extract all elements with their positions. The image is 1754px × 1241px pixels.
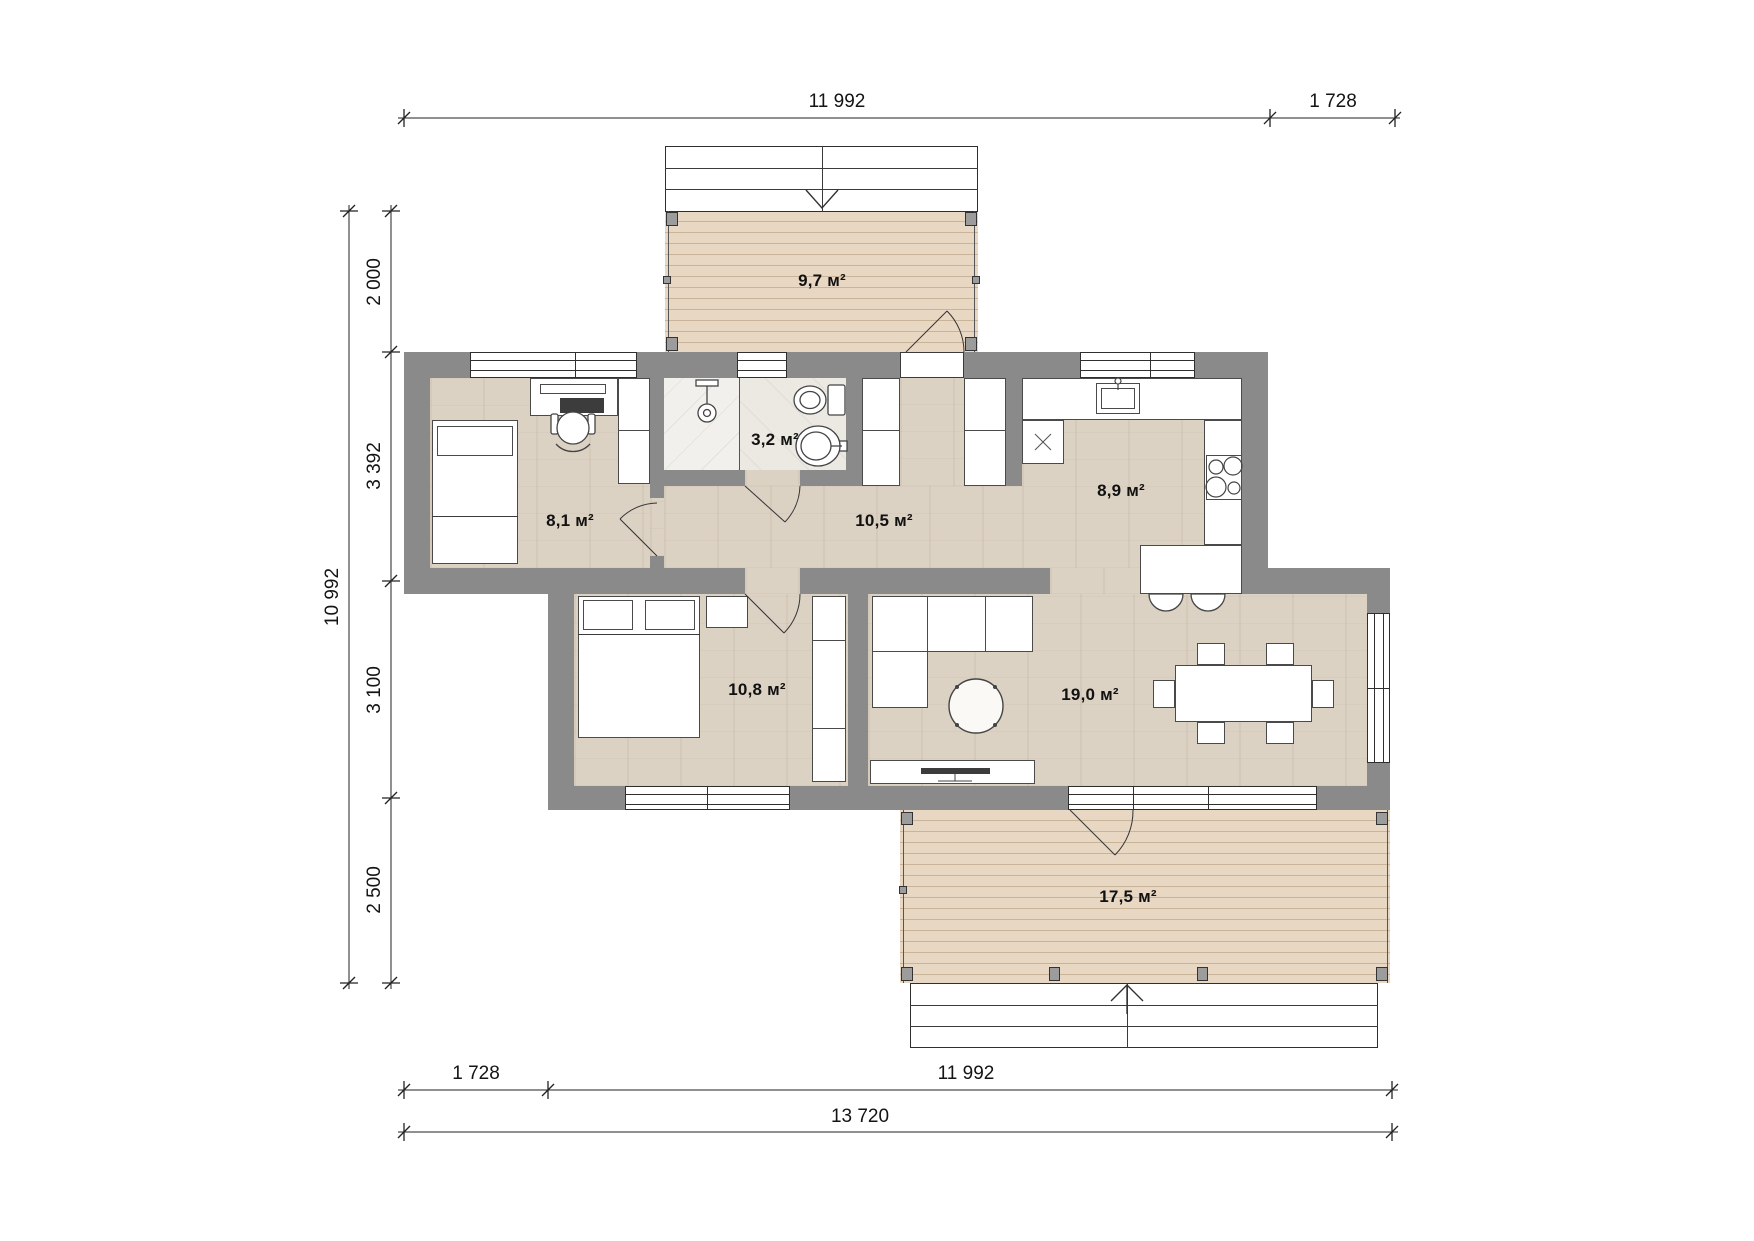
floor-plan-canvas: 9,7 м² 8,1 м² 3,2 м² 10,5 м² 8,9 м² 10,8… — [0, 0, 1754, 1241]
dim-top-1728: 1 728 — [1309, 91, 1357, 113]
stove — [1206, 455, 1242, 500]
wall-segment — [1367, 763, 1390, 786]
door-gap-kids-room — [650, 498, 664, 556]
terrace-bottom-rail-left — [903, 810, 904, 983]
terrace-post — [666, 212, 678, 226]
dining-chair — [1197, 722, 1225, 744]
dim-bottom-11992: 11 992 — [938, 1063, 995, 1085]
terrace-post — [1376, 812, 1388, 825]
room-area-kids-room: 8,1 м² — [546, 511, 594, 531]
kitchen-island — [1140, 545, 1242, 594]
room-area-bedroom: 10,8 м² — [728, 680, 785, 700]
room-area-hallway: 10,5 м² — [855, 511, 912, 531]
sofa-seam — [873, 651, 927, 652]
wall-segment — [1195, 352, 1268, 378]
dim-left-2500: 2 500 — [364, 866, 386, 914]
dim-left-2000: 2 000 — [364, 258, 386, 306]
corner-sofa-main — [927, 596, 1033, 652]
bed-pillow — [645, 600, 695, 630]
window-mullion — [707, 787, 708, 809]
wall-segment — [1317, 786, 1390, 810]
window-mullion — [1208, 787, 1209, 809]
desk-shelf — [540, 384, 606, 394]
door-gap-bedroom — [745, 568, 800, 594]
wall-segment — [1367, 594, 1390, 613]
dining-table — [1175, 665, 1312, 722]
wall-segment — [637, 352, 737, 378]
wall-segment — [664, 470, 745, 486]
wall-segment — [1006, 378, 1022, 486]
wardrobe-divider — [812, 728, 846, 729]
terrace-bottom-steps — [910, 983, 1378, 1048]
terrace-glazed-door — [1068, 786, 1317, 810]
dining-chair — [1197, 643, 1225, 665]
wall-segment — [787, 352, 900, 378]
wall-segment — [800, 470, 846, 486]
shower-divider-line — [739, 378, 740, 470]
window-mullion — [1133, 787, 1134, 809]
floor-entry-corridor — [900, 378, 964, 486]
wardrobe-divider — [812, 640, 846, 641]
door-gap-bathroom — [745, 470, 800, 486]
wall-segment — [650, 556, 664, 568]
window — [737, 352, 787, 378]
terrace-post — [901, 967, 913, 981]
terrace-post — [1376, 967, 1388, 981]
terrace-post-mid — [972, 276, 980, 284]
room-area-kitchen: 8,9 м² — [1097, 481, 1145, 501]
wall-segment — [790, 786, 1068, 810]
kitchen-sink-basin — [1101, 388, 1135, 409]
wall-segment — [404, 352, 470, 378]
wall-segment — [650, 378, 664, 498]
wall-segment — [404, 568, 745, 594]
window-mullion — [1150, 353, 1151, 377]
dim-left-3392: 3 392 — [364, 442, 386, 490]
terrace-post — [901, 812, 913, 825]
wall-segment — [848, 594, 868, 786]
bed-pillow — [437, 426, 513, 456]
dining-chair — [1266, 722, 1294, 744]
room-area-living-room: 19,0 м² — [1061, 685, 1118, 705]
wardrobe-divider — [618, 430, 650, 431]
dim-bottom-overall-13720: 13 720 — [831, 1106, 889, 1128]
closet-divider — [862, 430, 900, 431]
tall-cabinet-fridge — [1022, 420, 1064, 464]
terrace-bottom-rail-right — [1387, 810, 1388, 983]
terrace-post — [1197, 967, 1208, 981]
floor-shower — [664, 378, 739, 470]
dining-chair — [1312, 680, 1334, 708]
wardrobe — [812, 596, 846, 782]
bed-pillow — [583, 600, 633, 630]
dim-top-11992: 11 992 — [809, 91, 866, 113]
terrace-post — [965, 212, 977, 226]
step-line — [910, 1005, 1378, 1006]
closet-divider — [964, 430, 1006, 431]
dim-left-overall-10992: 10 992 — [322, 568, 344, 626]
dim-left-3100: 3 100 — [364, 666, 386, 714]
sofa-seam — [985, 597, 986, 651]
terrace-post — [965, 337, 977, 351]
window-mullion — [1368, 688, 1389, 689]
window — [1080, 352, 1195, 378]
wall-segment — [548, 594, 574, 810]
terrace-post-mid — [663, 276, 671, 284]
floor-opening-hall-living — [1050, 568, 1140, 594]
floor-hall — [664, 486, 1022, 568]
wall-segment — [964, 352, 1080, 378]
room-area-terrace-bottom: 17,5 м² — [1099, 887, 1156, 907]
wall-segment — [1242, 378, 1268, 568]
terrace-post-mid — [899, 886, 907, 894]
printer — [560, 398, 604, 413]
room-area-terrace-top: 9,7 м² — [798, 271, 846, 291]
steps-center-line — [822, 146, 823, 212]
dim-bottom-1728: 1 728 — [452, 1063, 500, 1085]
wall-segment — [548, 786, 625, 810]
wall-segment — [800, 568, 1050, 594]
corner-sofa-chaise — [872, 596, 928, 708]
wall-segment — [404, 378, 430, 594]
bed-blanket-line — [432, 516, 518, 517]
wall-segment — [1242, 568, 1390, 594]
room-area-bathroom: 3,2 м² — [751, 430, 799, 450]
steps-center-line — [1127, 983, 1128, 1048]
hall-closet — [964, 378, 1006, 486]
terrace-door-leaf — [900, 352, 964, 378]
nightstand — [706, 596, 748, 628]
dining-chair — [1266, 643, 1294, 665]
bed-blanket-line — [578, 634, 700, 635]
window — [470, 352, 637, 378]
step-line — [910, 1026, 1378, 1027]
terrace-post — [1049, 967, 1060, 981]
wall-segment — [846, 378, 862, 486]
terrace-post — [666, 337, 678, 351]
hall-closet — [862, 378, 900, 486]
window-mullion — [575, 353, 576, 377]
tv — [921, 768, 990, 774]
wardrobe — [618, 378, 650, 484]
dining-chair — [1153, 680, 1175, 708]
